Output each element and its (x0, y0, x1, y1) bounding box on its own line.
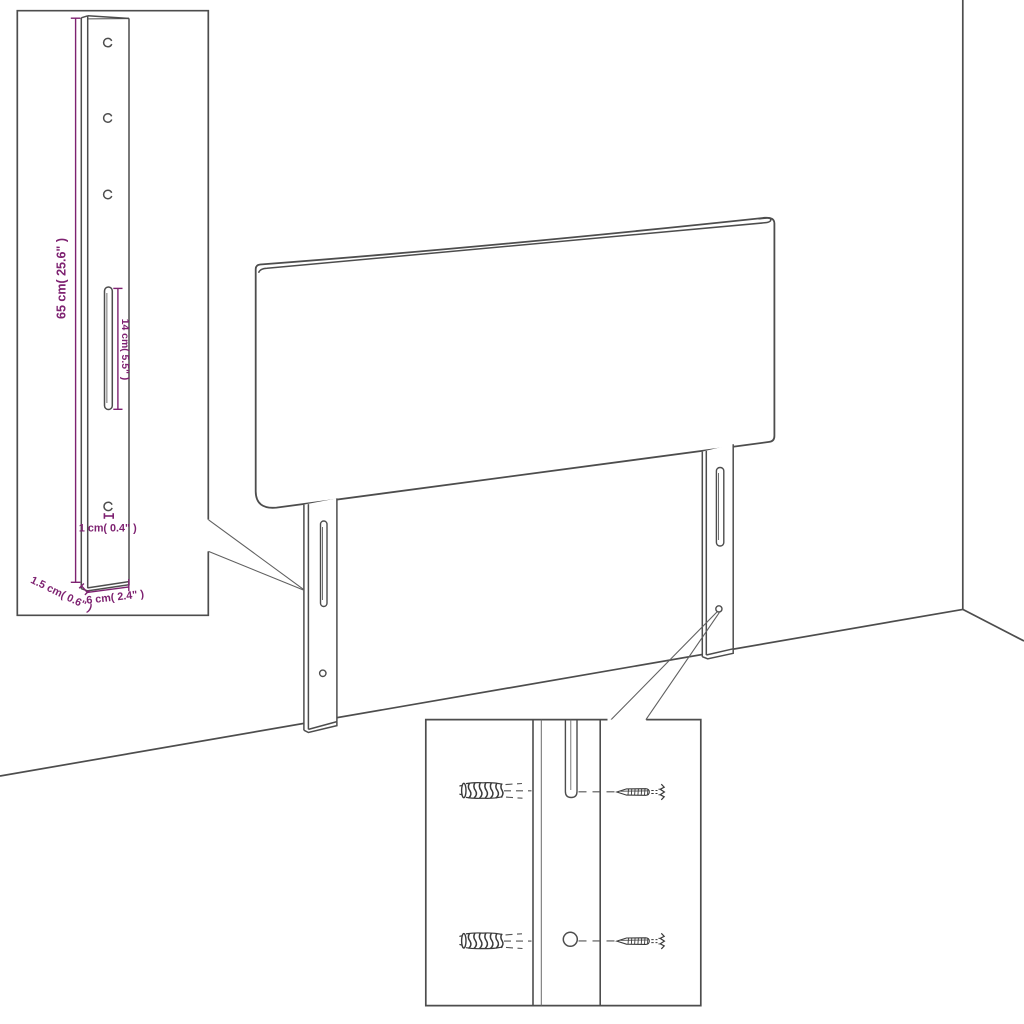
svg-text:1 cm( 0.4" ): 1 cm( 0.4" ) (79, 523, 137, 535)
svg-text:65 cm( 25.6" ): 65 cm( 25.6" ) (55, 238, 69, 319)
svg-text:14 cm( 5.5" ): 14 cm( 5.5" ) (119, 319, 130, 381)
